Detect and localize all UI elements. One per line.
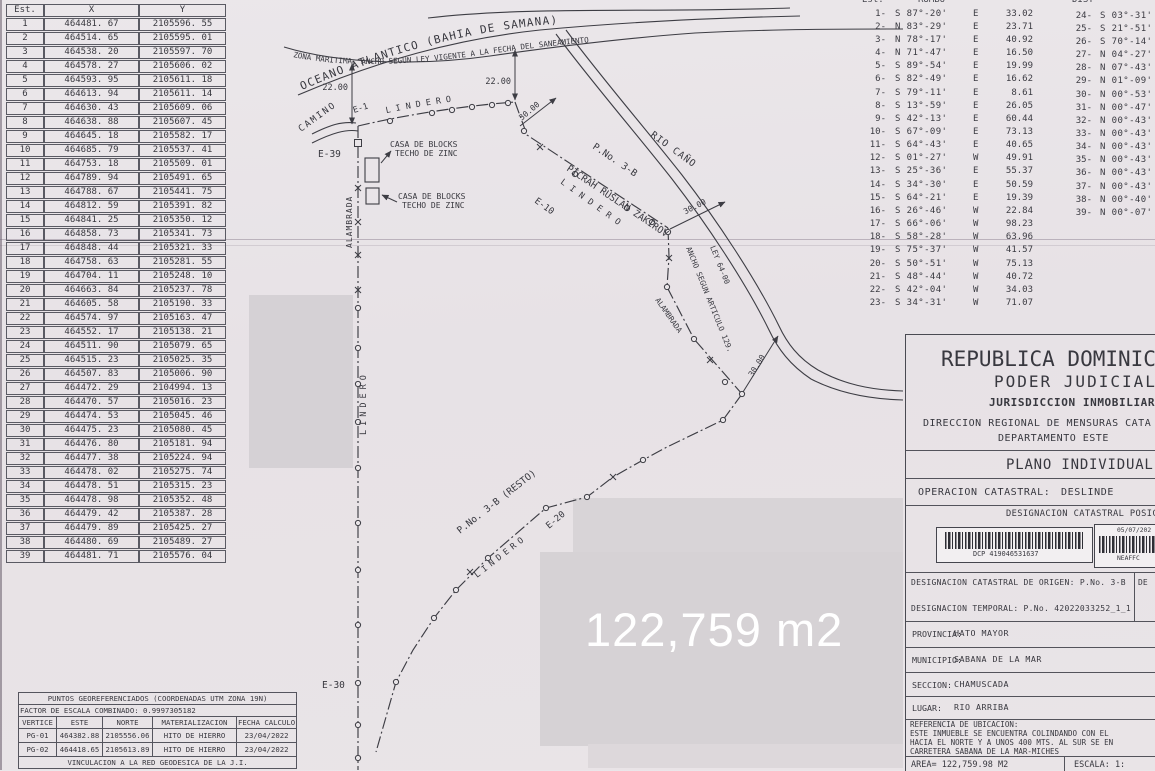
coord-row: 21464605. 582105190. 33 [6,298,226,311]
area-overlay-text: 122,759 m2 [585,602,843,657]
georef-title-row: PUNTOS GEOREFERENCIADOS (COORDENADAS UTM… [19,693,297,705]
panel-temporal-row: DESIGNACION TEMPORAL: P.No. 42022033252_… [906,598,1155,622]
bearing-row: 26-S 70°-14' [1062,35,1152,48]
panel-operacion-row: OPERACION CATASTRAL: DESLINDE [906,479,1155,506]
coord-row: 9464645. 182105582. 17 [6,130,226,143]
bearing-row: 25-S 21°-51' [1062,22,1152,35]
house-label: CASA DE BLOCKS [390,140,458,149]
bearing-row: 33-N 00°-43' [1062,127,1152,140]
coord-row: 29464474. 532105045. 46 [6,410,226,423]
alambrada-label: ALAMBRADA [345,196,354,248]
parcel-number-label: P.No. 3-B [590,141,639,179]
coord-row: 32464477. 382105224. 94 [6,452,226,465]
georef-table: PUNTOS GEOREFERENCIADOS (COORDENADAS UTM… [18,692,297,769]
station-e39-label: E-39 [318,149,341,160]
coord-row: 20464663. 842105237. 78 [6,284,226,297]
coordinate-table-header: Est. X Y [6,4,226,17]
dim-22-label: 22.00 [322,83,348,93]
panel-plano-row: PLANO INDIVIDUAL [906,450,1155,479]
georef-footer-row: VINCULACION A LA RED GEODESICA DE LA J.I… [19,757,297,769]
lugar-label: LUGAR: [912,703,942,713]
coord-row: 7464630. 432105609. 06 [6,102,226,115]
coord-row: 3464538. 202105597. 70 [6,46,226,59]
coord-row: 14464812. 592105391. 82 [6,200,226,213]
barcode-date: 05/07/202 [1117,527,1151,534]
panel-lugar-row: LUGAR: RIO ARRIBA [906,696,1155,720]
designacion-origen: DESIGNACION CATASTRAL DE ORIGEN: P.No. 3… [911,578,1126,587]
coord-row: 10464685. 792105537. 41 [6,144,226,157]
bearing-row: 30-N 00°-53' [1062,88,1152,101]
panel-area-row: AREA= 122,759.98 M2 ESCALA: 1: [906,756,1155,771]
coord-row: 33464478. 022105275. 74 [6,466,226,479]
referencia-line: HACIA EL NORTE Y A UNOS 400 MTS. AL SUR … [910,738,1113,747]
coord-row: 2464514. 652105595. 01 [6,32,226,45]
coord-row: 25464515. 232105025. 35 [6,354,226,367]
house-label: TECHO DE ZINC [395,149,458,158]
panel-origen-row: DESIGNACION CATASTRAL DE ORIGEN: P.No. 3… [906,572,1155,598]
georef-factor-row: FACTOR DE ESCALA COMBINADO: 0.9997305182 [19,705,297,717]
seccion-value: CHAMUSCADA [954,679,1009,689]
panel-referencia-row: REFERENCIA DE UBICACION: ESTE INMUEBLE S… [906,719,1155,757]
panel-title-poder-judicial: PODER JUDICIAL [994,372,1155,391]
lindero-label: LINDERO [359,371,369,435]
bearing-header-dist: DIST [1072,0,1094,5]
owner-name-label: PICRAH RUSLAN ZAKIROV [564,163,670,239]
coord-row: 16464858. 732105341. 73 [6,228,226,241]
station-e20-label: E-20 [545,510,568,532]
coord-row: 4464578. 272105606. 02 [6,60,226,73]
bearing-row: 29-N 01°-09' [1062,75,1152,88]
bearing-row: 34-N 00°-43' [1062,141,1152,154]
georef-table-body: PUNTOS GEOREFERENCIADOS (COORDENADAS UTM… [19,693,297,769]
bearing-row: 32-N 00°-43' [1062,114,1152,127]
ocean-upper-line [428,8,790,18]
station-e30-label: E-30 [322,680,345,691]
panel-title-direccion: DIRECCION REGIONAL DE MENSURAS CATA [923,418,1151,429]
camino-road [312,131,358,144]
coord-row: 24464511. 902105079. 65 [6,340,226,353]
coord-row: 13464788. 672105441. 75 [6,186,226,199]
coord-row: 35464478. 982105352. 48 [6,494,226,507]
coord-row: 34464478. 512105315. 23 [6,480,226,493]
coord-row: 15464841. 252105350. 12 [6,214,226,227]
coord-row: 1464481. 672105596. 55 [6,18,226,31]
referencia-line: CARRETERA SABANA DE LA MAR-MICHES [910,747,1059,756]
bearing-row: 35-N 00°-43' [1062,154,1152,167]
panel-municipio-row: MUNICIPIO: SABANA DE LA MAR [906,647,1155,673]
coord-row: 22464574. 972105163. 47 [6,312,226,325]
designacion-posicional-label: DESIGNACION CATASTRAL POSIC [1006,509,1155,519]
col-y: Y [139,4,226,17]
camino-label: CAMINO [297,100,339,134]
escala-value: ESCALA: 1: [1074,760,1125,770]
designacion-temporal: DESIGNACION TEMPORAL: P.No. 42022033252_… [911,604,1131,613]
alambrada-label: ALAMBRADA [653,296,684,335]
house-outline [366,188,379,204]
lindero-label: LINDERO [385,94,457,116]
georef-factor: FACTOR DE ESCALA COMBINADO: 0.9997305182 [19,705,297,717]
georef-title: PUNTOS GEOREFERENCIADOS (COORDENADAS UTM… [19,693,297,705]
area-value: AREA= 122,759.98 M2 [911,760,1008,770]
house-label-arrow [381,151,391,163]
panel-seccion-row: SECCION: CHAMUSCADA [906,672,1155,697]
panel-title-departamento: DEPARTAMENTO ESTE [998,433,1109,444]
barcode-stripes [945,532,1084,549]
ocean-label: OCEANO ATLANTICO (BAHIA DE SAMANA) [298,13,559,92]
house-label: CASA DE BLOCKS [398,192,466,201]
bearing-list-right: 24-S 03°-31'25-S 21°-51'26-S 70°-14'27-N… [1062,9,1152,220]
dim-30-label: 30.00 [747,353,767,378]
coord-row: 31464476. 802105181. 94 [6,438,226,451]
barcode-box: 05/07/202 NEAFFC [1094,524,1155,568]
lindero-label: LINDERO [473,533,529,580]
parcel-resto-label: P.No. 3-B (RESTO) [455,468,538,537]
coord-row: 19464704. 112105248. 10 [6,270,226,283]
area-row-divider [1064,756,1065,771]
coord-row: 37464479. 892105425. 27 [6,522,226,535]
coord-row: 28464470. 572105016. 23 [6,396,226,409]
coordinate-table: Est. X Y 1464481. 672105596. 552464514. … [6,3,226,564]
coord-row: 8464638. 882105607. 45 [6,116,226,129]
coord-row: 5464593. 952105611. 18 [6,74,226,87]
bearing-header-rumbo: RUMBO [918,0,945,5]
ley-64-00-label: LEY 64-00 [708,244,732,286]
bearing-row: 36-N 00°-43' [1062,167,1152,180]
coord-row: 38464480. 692105489. 27 [6,536,226,549]
referencia-title: REFERENCIA DE UBICACION: [910,720,1018,729]
operacion-label: OPERACION CATASTRAL: [918,487,1050,498]
station-e10-label: E-10 [532,196,555,217]
col-est: Est. [6,4,44,17]
river-line [566,30,903,391]
bearing-row: 39-N 00°-07' [1062,206,1152,219]
bearing-row: 24-S 03°-31' [1062,9,1152,22]
provincia-value: HATO MAYOR [954,628,1009,638]
municipio-value: SABANA DE LA MAR [954,654,1042,664]
georef-header-row: VERTICEESTENORTEMATERIALIZACIONFECHA CAL… [19,717,297,729]
barcode-box: DCP 419046531637 [936,527,1093,563]
coord-row: 30464475. 232105080. 45 [6,424,226,437]
origen-partial-text: DE [1138,578,1148,587]
bearing-row: 31-N 00°-47' [1062,101,1152,114]
seccion-label: SECCION: [912,680,952,690]
coord-row: 18464758. 632105281. 55 [6,256,226,269]
panel-provincia-row: PROVINCIA: HATO MAYOR [906,621,1155,648]
col-x: X [44,4,139,17]
coord-row: 39464481. 712105576. 04 [6,550,226,563]
bearing-row: 28-N 07°-43' [1062,62,1152,75]
georef-row: PG-01464382.882105556.06HITO DE HIERRO23… [19,729,297,743]
coord-row: 17464848. 442105321. 33 [6,242,226,255]
plano-individual-label: PLANO INDIVIDUAL [1006,457,1154,473]
barcode-stripes [1099,536,1155,553]
house-outline [365,158,379,182]
barcode-code: DCP 419046531637 [973,550,1038,558]
bearing-row: 38-N 00°-40' [1062,193,1152,206]
coord-row: 23464552. 172105138. 21 [6,326,226,339]
station-e1-label: E-1 [352,102,370,116]
camino-road [312,122,356,134]
panel-designacion-posicional-row: DESIGNACION CATASTRAL POSIC DCP 41904653… [906,506,1155,573]
bearing-row: 27-N 04°-27' [1062,48,1152,61]
coord-row: 12464789. 942105491. 65 [6,172,226,185]
scanned-cadastral-plan: { "scan": { "area_overlay": "122,759 m2"… [0,0,1155,770]
barcode-code: NEAFFC [1117,555,1140,562]
coord-row: 6464613. 942105611. 14 [6,88,226,101]
dim-22-label: 22.00 [485,77,511,87]
panel-title-republica: REPUBLICA DOMINIC [941,347,1155,371]
panel-title-jurisdiccion: JURISDICCION INMOBILIAR [989,396,1155,409]
coordinate-table-body: 1464481. 672105596. 552464514. 652105595… [6,18,226,563]
coord-row: 11464753. 182105509. 01 [6,158,226,171]
boundary-east [667,228,742,394]
referencia-line: ESTE INMUEBLE SE ENCUENTRA COLINDANDO CO… [910,729,1109,738]
certificate-panel: REPUBLICA DOMINIC PODER JUDICIAL JURISDI… [905,334,1155,771]
house-label-arrow [382,195,397,202]
panel-header-block: REPUBLICA DOMINIC PODER JUDICIAL JURISDI… [906,335,1155,451]
lugar-value: RIO ARRIBA [954,702,1009,712]
coord-row: 26464507. 832105006. 90 [6,368,226,381]
coord-row: 27464472. 292104994. 13 [6,382,226,395]
georef-row: PG-02464418.652105613.89HITO DE HIERRO23… [19,743,297,757]
operacion-value: DESLINDE [1061,487,1114,498]
boundary-southwest [376,394,742,752]
dim-30-label: 30.00 [682,197,708,216]
house-label: TECHO DE ZINC [402,201,465,210]
coord-row: 36464479. 422105387. 28 [6,508,226,521]
bearing-row: 37-N 00°-43' [1062,180,1152,193]
scan-left-edge [0,0,2,770]
